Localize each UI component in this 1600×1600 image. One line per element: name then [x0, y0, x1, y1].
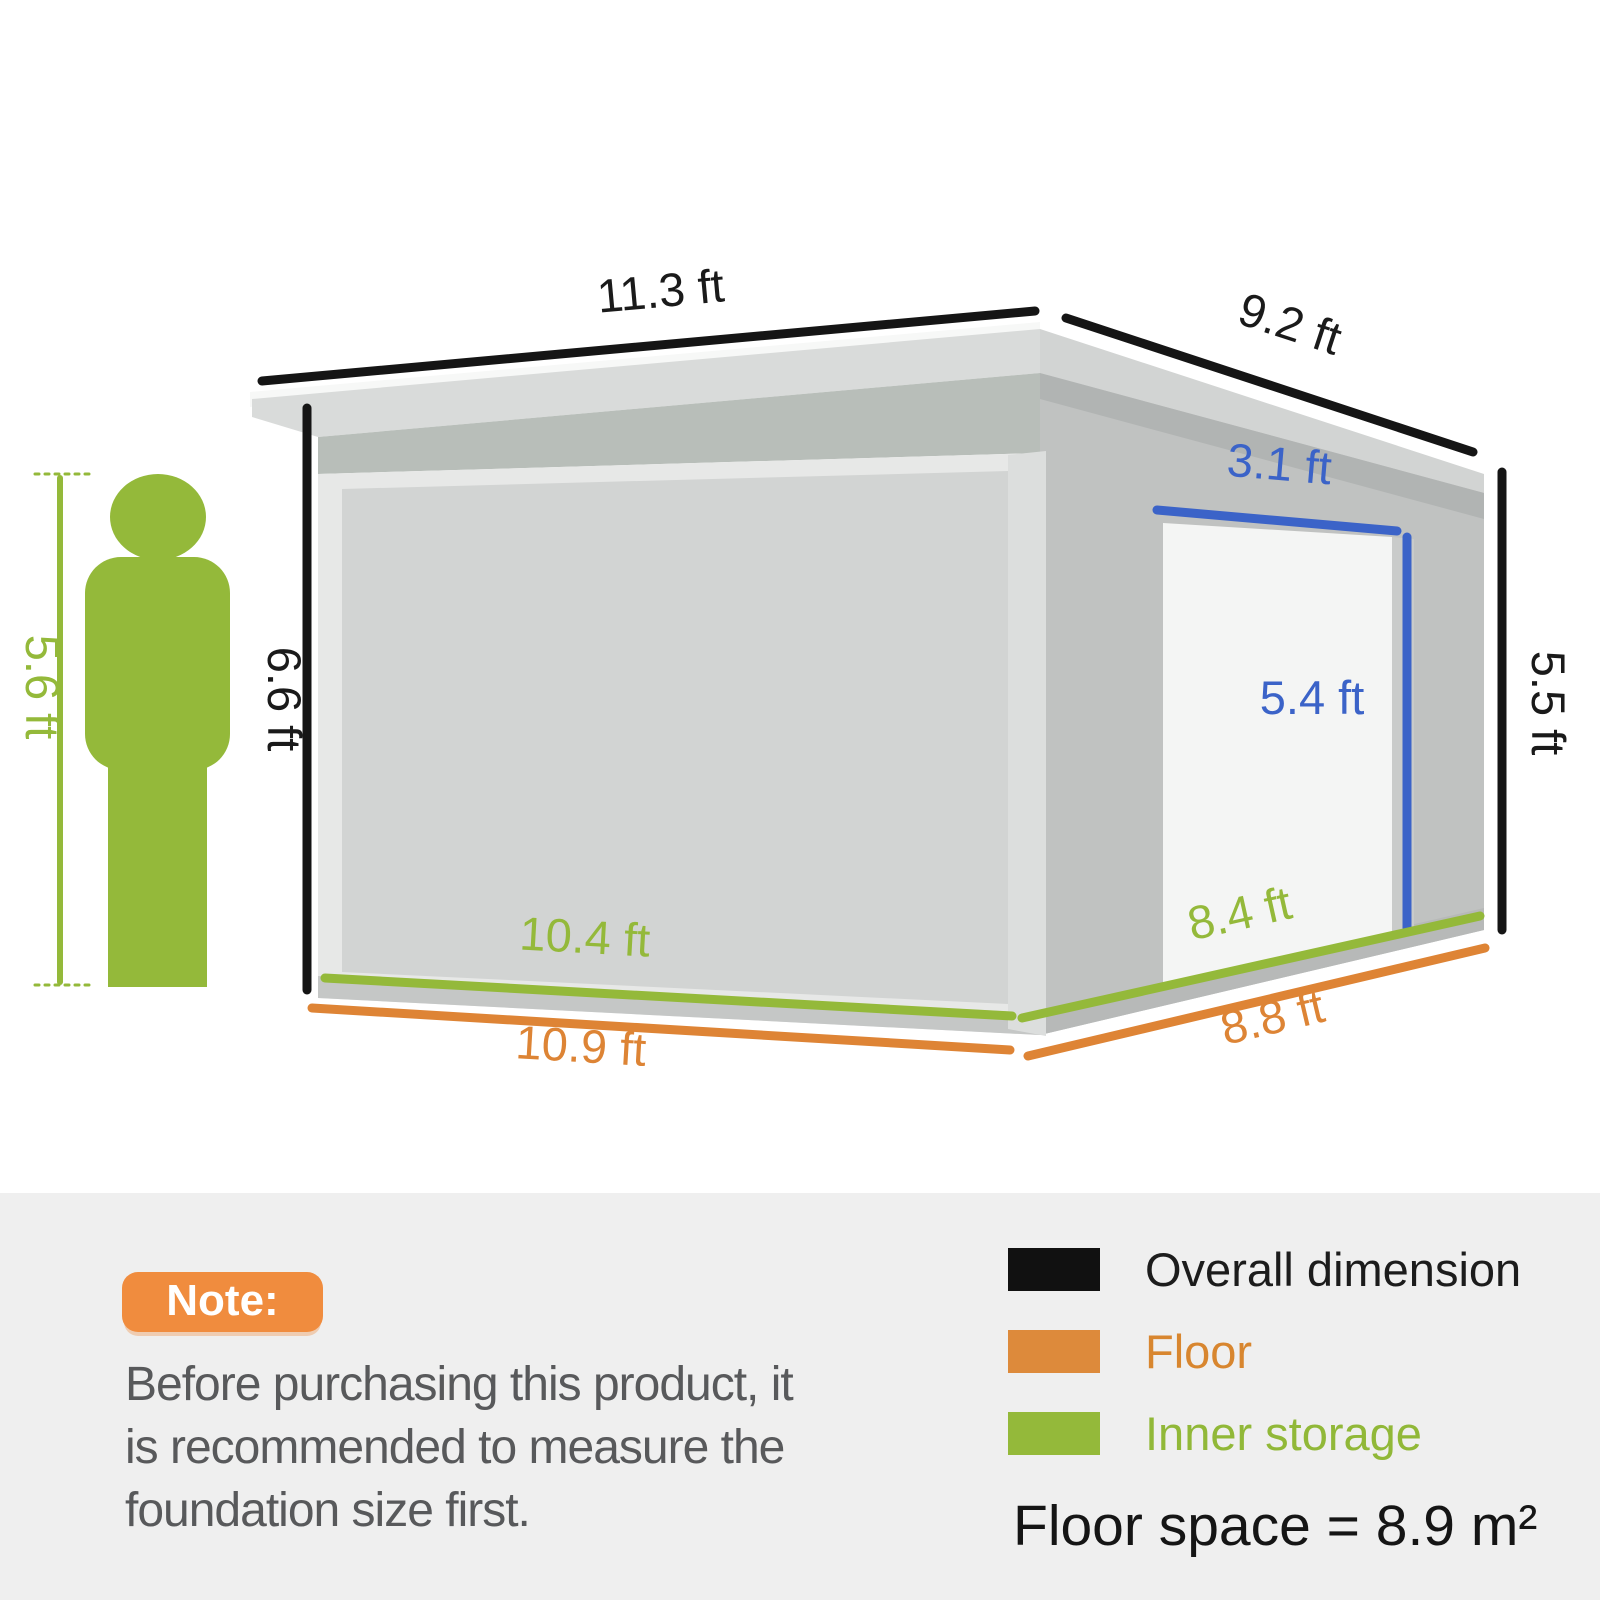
legend-label-overall: Overall dimension: [1145, 1242, 1521, 1297]
person-legs: [108, 752, 207, 987]
note-text: Before purchasing this product, it is re…: [125, 1353, 793, 1542]
note-badge: Note:: [122, 1272, 323, 1332]
note-line: Before purchasing this product, it: [125, 1353, 793, 1416]
dim-label-wall-left-height: 6.6 ft: [258, 647, 311, 752]
person-silhouette: [85, 474, 230, 987]
shed-dimension-diagram: 11.3 ft 9.2 ft 6.6 ft 5.5 ft 3.1 ft 5.4 …: [0, 0, 1600, 1193]
legend-row-inner-storage: Inner storage: [1008, 1412, 1521, 1455]
corner-trim: [1008, 451, 1046, 1036]
floor-space-text: Floor space = 8.9 m²: [1013, 1493, 1537, 1559]
dim-label-wall-right-height: 5.5 ft: [1522, 651, 1575, 756]
person-torso: [85, 557, 230, 770]
overall-dimension-swatch: [1008, 1248, 1100, 1291]
dim-label-inner-front: 10.4 ft: [518, 906, 651, 966]
dim-label-floor-side: 8.8 ft: [1215, 979, 1329, 1055]
note-line: foundation size first.: [125, 1479, 793, 1542]
dim-label-person-height: 5.6 ft: [16, 635, 69, 740]
dim-label-door-width: 3.1 ft: [1225, 433, 1334, 495]
legend-label-floor: Floor: [1145, 1324, 1252, 1379]
note-line: is recommended to measure the: [125, 1416, 793, 1479]
front-wall-panel: [342, 471, 1008, 1004]
legend-row-floor: Floor: [1008, 1330, 1521, 1373]
inner-storage-swatch: [1008, 1412, 1100, 1455]
dim-label-door-height: 5.4 ft: [1260, 671, 1365, 724]
legend-label-inner-storage: Inner storage: [1145, 1406, 1422, 1461]
dim-label-floor-front: 10.9 ft: [514, 1015, 648, 1076]
legend-row-overall: Overall dimension: [1008, 1248, 1521, 1291]
legend: Overall dimension Floor Inner storage: [1008, 1248, 1521, 1494]
dim-label-roof-front: 11.3 ft: [595, 258, 726, 322]
info-panel: Note: Before purchasing this product, it…: [0, 1193, 1600, 1600]
dim-label-roof-side: 9.2 ft: [1232, 282, 1348, 365]
floor-swatch: [1008, 1330, 1100, 1373]
person-head: [110, 474, 206, 560]
